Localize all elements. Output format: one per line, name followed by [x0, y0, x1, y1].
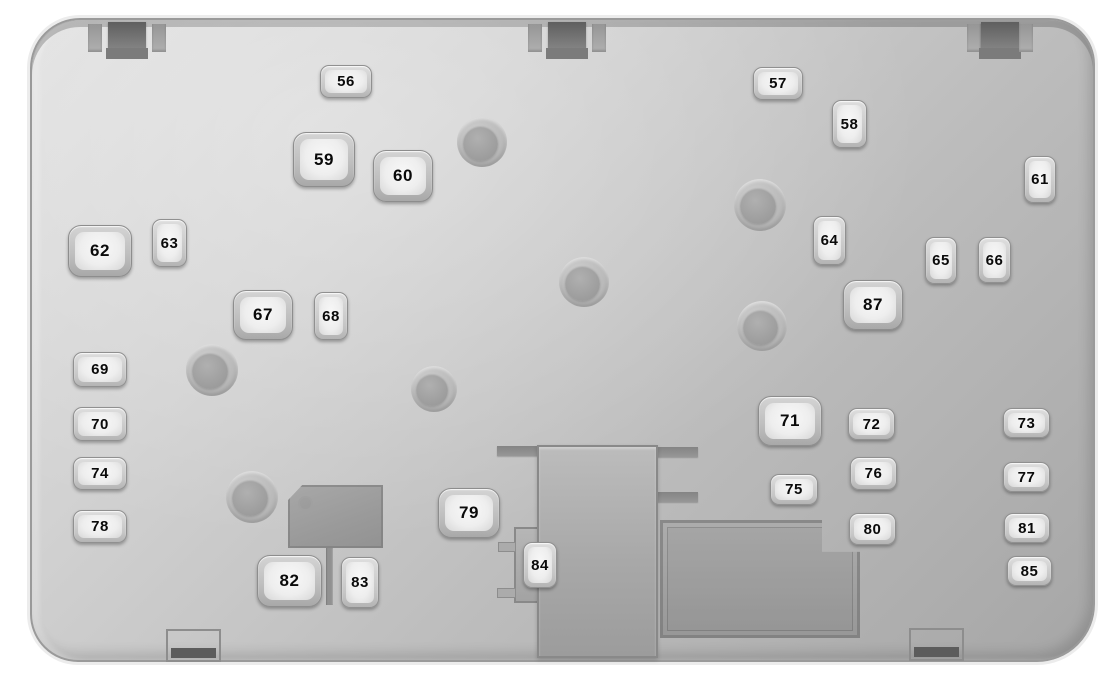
- fuse-label: 59: [314, 150, 334, 170]
- fuse-label: 74: [91, 465, 109, 482]
- fuse-58: 58: [832, 100, 867, 148]
- tab-part-blk2: [106, 48, 148, 59]
- fuse-70: 70: [73, 407, 127, 441]
- screw-boss-7: [226, 471, 278, 523]
- fuse-label: 81: [1018, 520, 1036, 537]
- fuse-label: 66: [986, 252, 1004, 269]
- fuse-label: 87: [863, 295, 883, 315]
- fuse-label: 85: [1021, 563, 1039, 580]
- fuse-69: 69: [73, 352, 127, 387]
- relay-block-small: [288, 485, 383, 548]
- fuse-61: 61: [1024, 156, 1056, 203]
- fuse-label: 84: [531, 557, 549, 574]
- fuse-label: 56: [337, 73, 355, 90]
- fuse-label: 69: [91, 361, 109, 378]
- fuse-85: 85: [1007, 556, 1052, 586]
- fuse-label: 60: [393, 166, 413, 186]
- screw-boss-4: [737, 301, 787, 351]
- fuse-label: 58: [841, 116, 859, 133]
- tab-part-sl: [528, 24, 542, 52]
- fuse-79: 79: [438, 488, 500, 538]
- fuse-68: 68: [314, 292, 348, 340]
- fuse-62: 62: [68, 225, 132, 277]
- fuse-56: 56: [320, 65, 372, 98]
- screw-boss-6: [411, 366, 457, 412]
- tab-part-blk2: [979, 48, 1021, 59]
- fuse-label: 82: [280, 571, 300, 591]
- fuse-label: 77: [1018, 469, 1036, 486]
- tab-part-sr: [1019, 24, 1033, 52]
- fuse-label: 67: [253, 305, 273, 325]
- fuse-81: 81: [1004, 513, 1050, 543]
- connector-tab-bar-3: [656, 492, 698, 502]
- tab-part-sl: [88, 24, 102, 52]
- fuse-80: 80: [849, 513, 896, 545]
- tab-part-blk: [108, 22, 146, 48]
- tab-part-sr: [152, 24, 166, 52]
- relay-pilot-hole: [298, 496, 313, 511]
- fuse-label: 64: [821, 232, 839, 249]
- fuse-label: 79: [459, 503, 479, 523]
- fuse-66: 66: [978, 237, 1011, 283]
- screw-boss-3: [559, 257, 609, 307]
- connector-tab-bar-2: [656, 447, 698, 457]
- top-mount-tab-1: [88, 20, 166, 60]
- fuse-74: 74: [73, 457, 127, 490]
- connector-nub-2: [497, 588, 516, 598]
- fuse-63: 63: [152, 219, 187, 267]
- tab-part-blk: [548, 22, 586, 48]
- fuse-64: 64: [813, 216, 846, 265]
- fuse-57: 57: [753, 67, 803, 100]
- connector-tab-bar-1: [497, 446, 539, 456]
- fuse-60: 60: [373, 150, 433, 202]
- screw-boss-2: [734, 179, 786, 231]
- fuse-75: 75: [770, 474, 818, 505]
- fuse-87: 87: [843, 280, 903, 330]
- fuse-label: 70: [91, 416, 109, 433]
- screw-boss-1: [457, 117, 507, 167]
- fuse-label: 75: [785, 481, 803, 498]
- tab-part-sr: [592, 24, 606, 52]
- screw-boss-5: [186, 344, 238, 396]
- fuse-84: 84: [523, 542, 557, 588]
- fuse-77: 77: [1003, 462, 1050, 492]
- fuse-83: 83: [341, 557, 379, 608]
- fuse-76: 76: [850, 457, 897, 490]
- fuse-label: 83: [351, 574, 369, 591]
- relay-slot: [326, 548, 333, 605]
- fuse-label: 76: [865, 465, 883, 482]
- fuse-label: 61: [1031, 171, 1049, 188]
- fuse-65: 65: [925, 237, 957, 284]
- fuse-label: 80: [864, 521, 882, 538]
- fuse-box-diagram: 5657585960616263646566676887697071727374…: [0, 0, 1112, 683]
- fuse-59: 59: [293, 132, 355, 187]
- fuse-71: 71: [758, 396, 822, 446]
- fuse-label: 72: [863, 416, 881, 433]
- fuse-78: 78: [73, 510, 127, 543]
- fuse-72: 72: [848, 408, 895, 440]
- fuse-82: 82: [257, 555, 322, 607]
- fuse-73: 73: [1003, 408, 1050, 438]
- fuse-label: 63: [161, 235, 179, 252]
- fuse-label: 71: [780, 411, 800, 431]
- bottom-mount-tab-1: [166, 629, 221, 662]
- fuse-label: 65: [932, 252, 950, 269]
- bottom-mount-tab-2: [909, 628, 964, 661]
- fuse-label: 62: [90, 241, 110, 261]
- fuse-label: 73: [1018, 415, 1036, 432]
- fuse-label: 78: [91, 518, 109, 535]
- tab-part-blk2: [546, 48, 588, 59]
- fuse-label: 68: [322, 308, 340, 325]
- tab-part-blk: [981, 22, 1019, 48]
- connector-nub-1: [498, 542, 516, 552]
- top-mount-tab-2: [528, 20, 606, 60]
- fuse-label: 57: [769, 75, 787, 92]
- fuse-67: 67: [233, 290, 293, 340]
- top-mount-tab-3: [967, 20, 1033, 60]
